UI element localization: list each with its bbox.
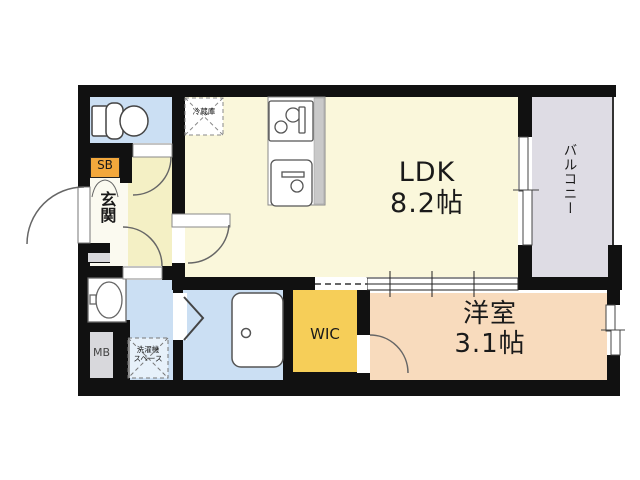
toilet-icon: [92, 103, 148, 139]
shoe-box-label: SB: [90, 159, 120, 173]
western-room-size: 3.1帖: [454, 329, 525, 359]
open-boundary-dashed: [315, 278, 367, 290]
meter-box-label: MB: [88, 347, 115, 360]
fixtures-layer: [0, 0, 640, 480]
sink-icon: [271, 160, 312, 206]
bathroom-folding-door: [173, 293, 203, 340]
wic-label: WIC: [293, 326, 357, 343]
washbasin-icon: [88, 278, 126, 322]
ldk-size: 8.2帖: [390, 188, 464, 219]
balcony-label: バルコニー: [560, 143, 576, 216]
balcony-window: [513, 137, 539, 245]
washroom-door: [123, 227, 162, 279]
western-room-name: 洋室: [463, 299, 517, 329]
washer-space-line2: スペース: [133, 354, 162, 363]
ldk-name: LDK: [399, 157, 456, 188]
entrance-door: [27, 187, 90, 244]
toilet-door: [133, 144, 172, 195]
ldk-door: [172, 214, 230, 263]
ldk-label: LDK 8.2帖: [357, 157, 497, 219]
refrigerator-label: 冷蔵庫: [185, 108, 223, 117]
western-room-label: 洋室 3.1帖: [400, 300, 580, 360]
entrance-label: 玄関: [97, 191, 115, 223]
kitchen-counter: [268, 97, 325, 206]
washer-space-line1: 洗濯機: [137, 345, 160, 354]
stove-icon: [269, 101, 313, 141]
bathtub-icon: [232, 293, 283, 367]
floor-plan: LDK 8.2帖 洋室 3.1帖 バルコニー 玄関 SB MB WIC 冷蔵庫 …: [0, 0, 640, 480]
washer-space-label: 洗濯機 スペース: [126, 345, 170, 364]
sliding-door-track: [367, 271, 518, 297]
western-room-window: [601, 305, 625, 355]
